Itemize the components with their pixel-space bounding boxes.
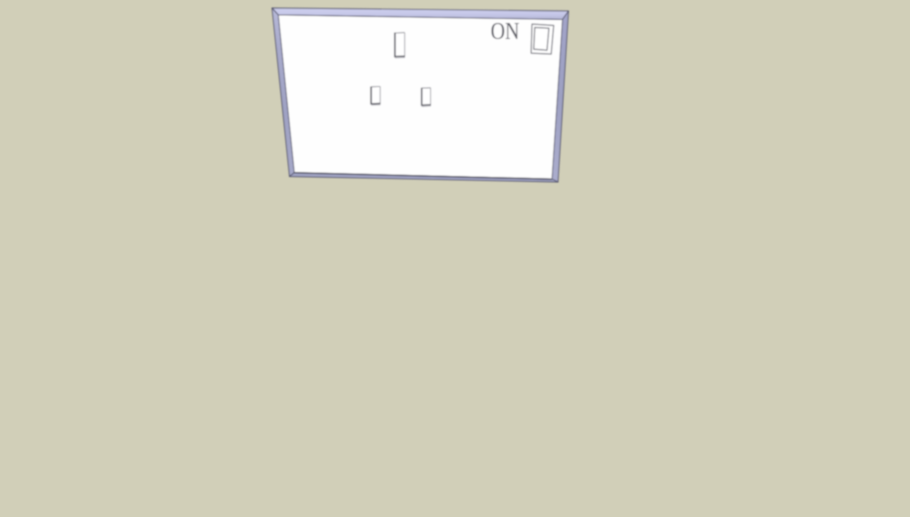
svg-text:ON: ON xyxy=(491,19,520,45)
